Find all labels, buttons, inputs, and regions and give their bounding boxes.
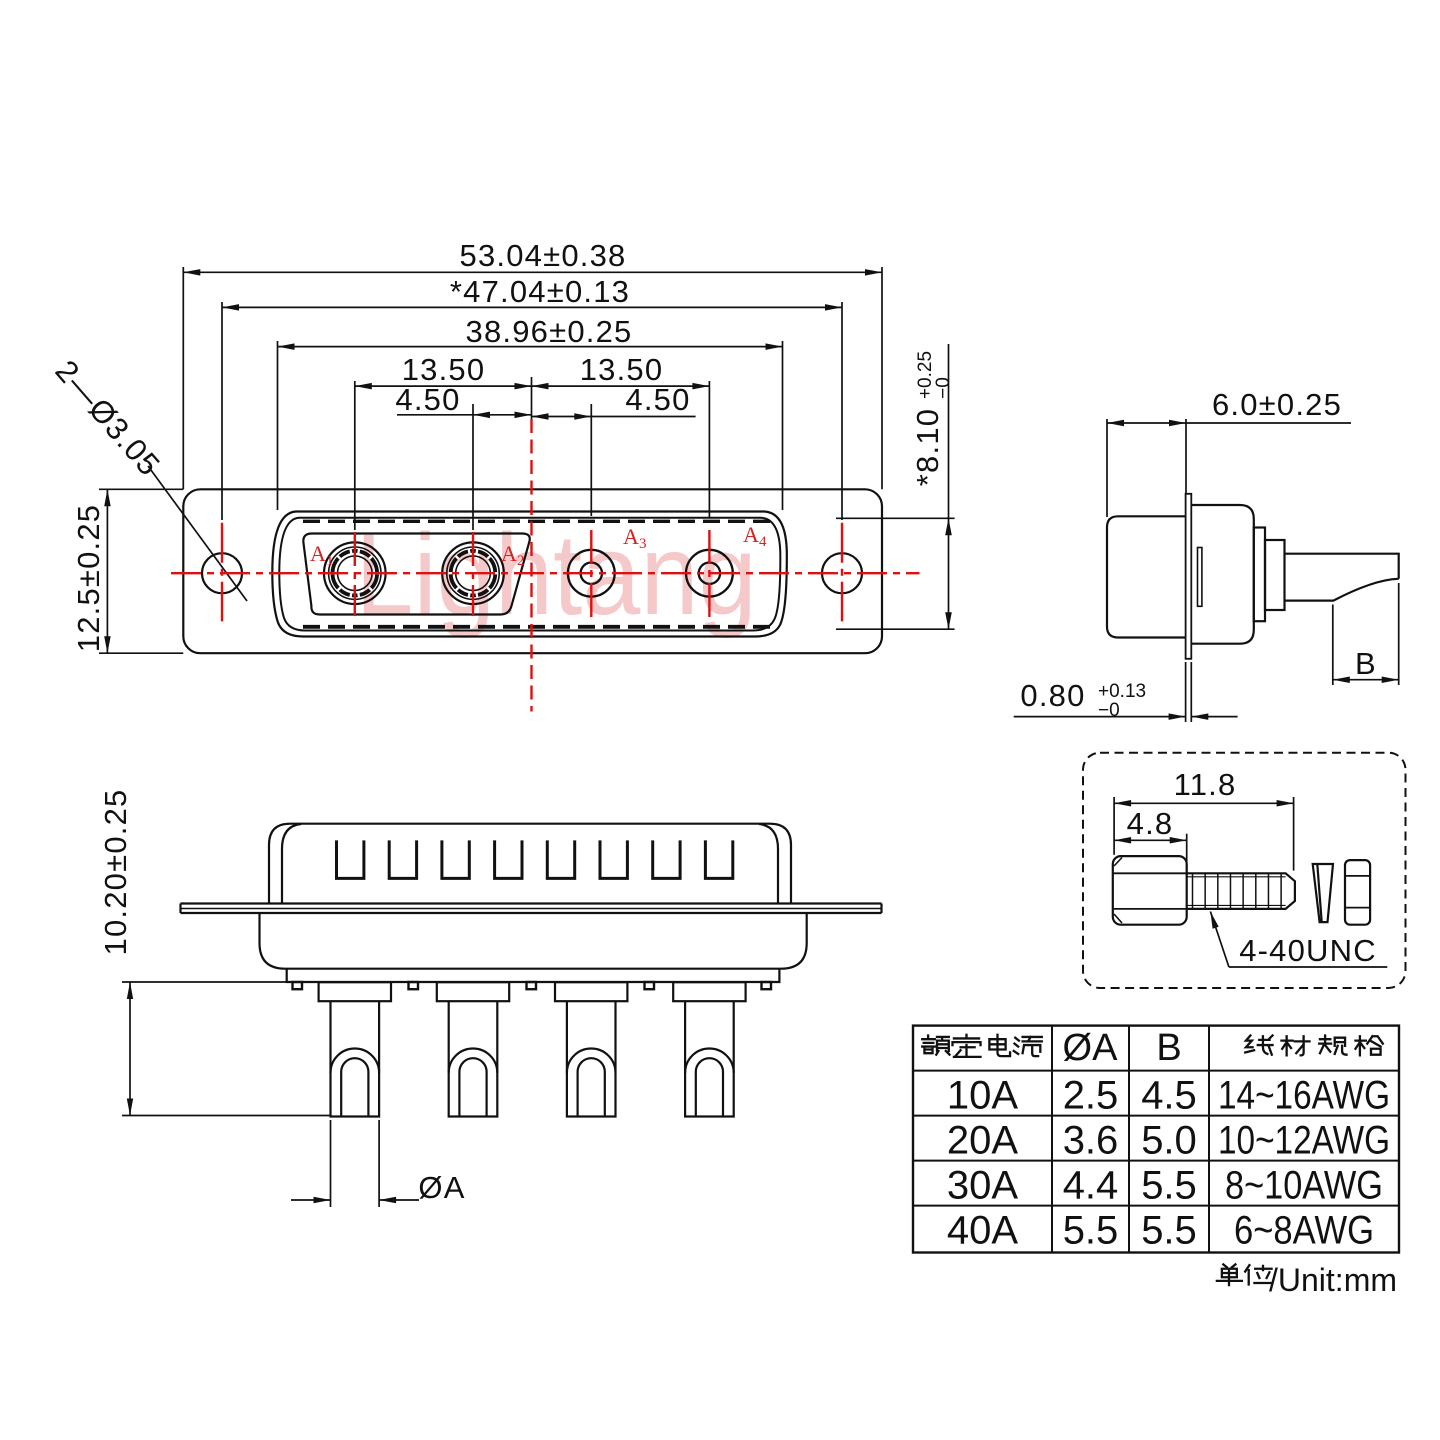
svg-text:5.0: 5.0 [1141,1119,1197,1163]
svg-text:B: B [1156,1027,1181,1069]
svg-text:6~8AWG: 6~8AWG [1234,1209,1374,1253]
svg-text:2: 2 [517,553,525,569]
svg-text:4: 4 [759,534,767,550]
svg-text:A: A [310,541,326,566]
svg-text:40A: 40A [947,1209,1018,1253]
svg-text:10~12AWG: 10~12AWG [1218,1119,1390,1163]
svg-text:11.8: 11.8 [1174,767,1237,802]
svg-text:5.5: 5.5 [1141,1164,1197,1208]
svg-text:3.6: 3.6 [1063,1119,1119,1163]
svg-text:4.50: 4.50 [625,382,690,417]
svg-text:4.4: 4.4 [1063,1164,1119,1208]
svg-text:−0: −0 [1098,700,1120,721]
svg-text:ØA: ØA [1063,1027,1119,1069]
svg-text:8~10AWG: 8~10AWG [1225,1164,1383,1208]
svg-text:*47.04±0.13: *47.04±0.13 [450,274,630,309]
svg-text:Lightang: Lightang [355,510,757,639]
svg-text:4.50: 4.50 [395,382,460,417]
svg-text:10.20±0.25: 10.20±0.25 [98,789,133,956]
svg-text:2—Ø3.05: 2—Ø3.05 [48,353,167,482]
svg-text:B: B [1355,646,1377,681]
svg-text:6.0±0.25: 6.0±0.25 [1212,387,1342,422]
svg-text:2.5: 2.5 [1063,1074,1119,1118]
svg-text:3: 3 [639,536,647,552]
svg-text:ØA: ØA [418,1170,465,1205]
svg-text:1: 1 [326,553,334,569]
svg-text:5.5: 5.5 [1063,1209,1119,1253]
svg-text:30A: 30A [947,1164,1018,1208]
svg-text:/Unit:mm: /Unit:mm [1269,1262,1397,1298]
svg-text:12.5±0.25: 12.5±0.25 [71,504,106,652]
svg-text:*8.10: *8.10 [910,408,945,486]
svg-text:10A: 10A [947,1074,1018,1118]
svg-text:4.8: 4.8 [1127,806,1174,841]
svg-text:38.96±0.25: 38.96±0.25 [466,314,633,349]
svg-text:5.5: 5.5 [1141,1209,1197,1253]
svg-text:4.5: 4.5 [1141,1074,1197,1118]
svg-text:−0: −0 [933,377,954,399]
svg-text:+0.13: +0.13 [1098,681,1146,702]
svg-text:53.04±0.38: 53.04±0.38 [460,238,627,273]
svg-text:4-40UNC: 4-40UNC [1239,933,1377,968]
svg-text:14~16AWG: 14~16AWG [1218,1074,1390,1118]
svg-text:20A: 20A [947,1119,1018,1163]
svg-text:0.80: 0.80 [1020,678,1085,713]
svg-text:A: A [501,541,517,566]
svg-text:A: A [623,524,639,549]
svg-text:A: A [743,522,759,547]
